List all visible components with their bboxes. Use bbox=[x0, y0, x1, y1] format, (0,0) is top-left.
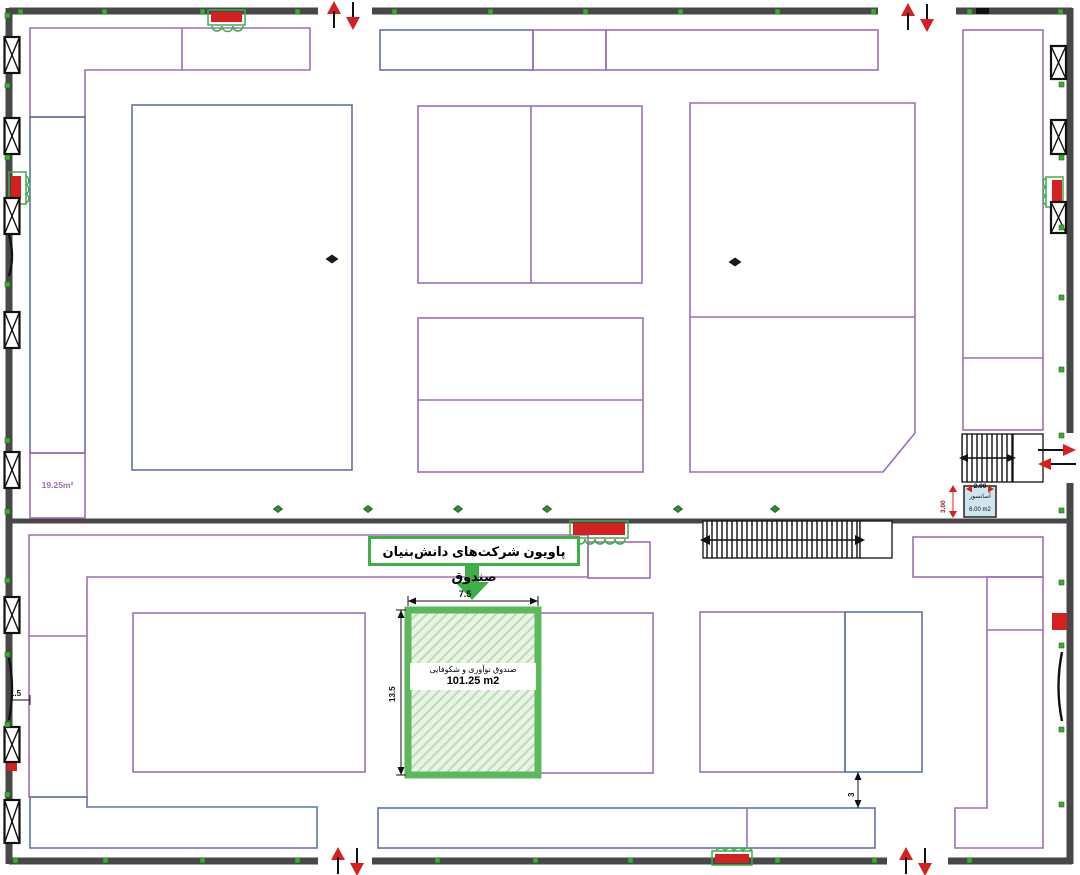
stairs-right bbox=[959, 434, 1043, 482]
left-offset-dim-label: 1.5 bbox=[10, 689, 21, 698]
stairs-center bbox=[700, 521, 892, 558]
exhibition-floor-plan: پاویون شرکت‌های دانش‌بنیان صندوق صندوق ن… bbox=[0, 0, 1080, 875]
booth-markers bbox=[326, 255, 742, 267]
aisle-markers bbox=[274, 506, 780, 513]
exit-arrows-top-left bbox=[327, 1, 360, 30]
pavilion-label-box: پاویون شرکت‌های دانش‌بنیان صندوق bbox=[368, 536, 580, 566]
booth-width-dim: 7.5 bbox=[435, 589, 495, 599]
elevator-area: 6.00 m2 bbox=[960, 507, 1000, 513]
elevator-name: آسانسور bbox=[962, 493, 998, 500]
elevator-width-dim: 2.00 bbox=[962, 483, 998, 490]
booth-height-dim: 13.5 bbox=[388, 686, 397, 702]
wall-tick bbox=[976, 8, 989, 14]
exit-arrows-bottom-right bbox=[899, 847, 932, 875]
aisle-dimension bbox=[855, 772, 862, 808]
elevator-height-dim: 3.00 bbox=[940, 500, 947, 513]
fire-hose-cabinet-bottom bbox=[712, 848, 752, 865]
highlighted-booth-label: صندوق نوآوری و شکوفایی 101.25 m2 bbox=[410, 663, 536, 690]
corner-booth-area-label: 19.25m² bbox=[30, 480, 85, 490]
exit-arrows-bottom-left bbox=[331, 847, 364, 875]
exit-arrows-top-right bbox=[901, 3, 934, 32]
aisle-dim-label: 3 bbox=[847, 793, 856, 797]
highlighted-booth bbox=[408, 610, 538, 775]
upper-hall-booths bbox=[30, 28, 1043, 518]
booth-name: صندوق نوآوری و شکوفایی bbox=[410, 665, 536, 675]
floorplan-canvas bbox=[0, 0, 1080, 875]
exit-arrows-right-wall bbox=[1038, 444, 1076, 470]
booth-area: 101.25 m2 bbox=[410, 675, 536, 688]
